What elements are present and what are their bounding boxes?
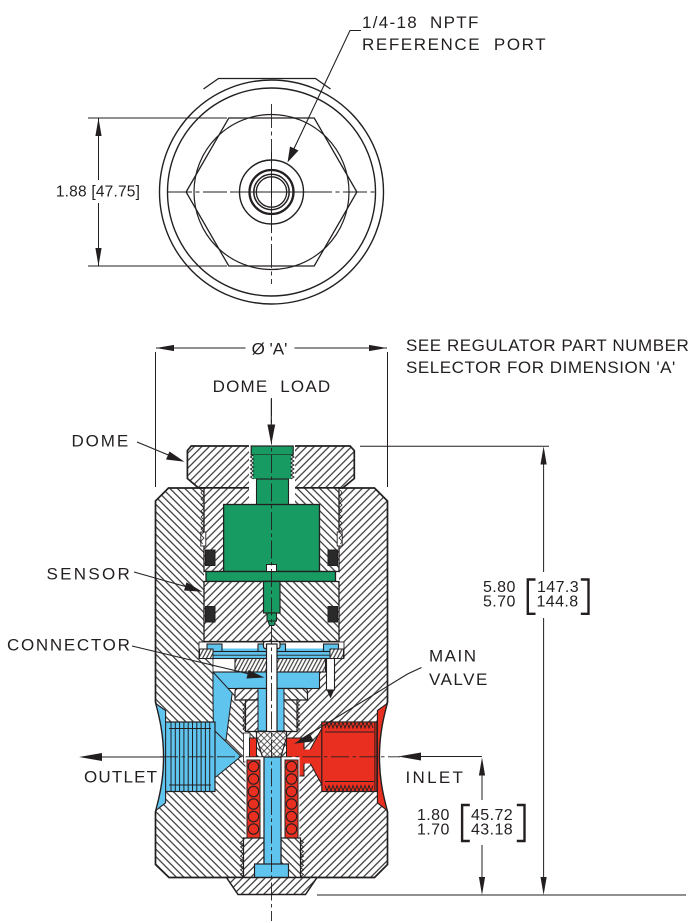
svg-text:Ø 'A': Ø 'A' <box>252 340 288 359</box>
svg-text:1.70: 1.70 <box>417 821 450 838</box>
svg-text:SELECTOR FOR DIMENSION 'A': SELECTOR FOR DIMENSION 'A' <box>406 358 676 377</box>
svg-text:1.88 [47.75]: 1.88 [47.75] <box>56 184 140 201</box>
svg-text:43.18: 43.18 <box>471 821 513 838</box>
svg-text:INLET: INLET <box>406 768 466 787</box>
svg-text:144.8: 144.8 <box>537 593 579 610</box>
svg-text:REFERENCE PORT: REFERENCE PORT <box>362 35 547 54</box>
svg-text:CONNECTOR: CONNECTOR <box>7 636 132 655</box>
svg-text:DOME LOAD: DOME LOAD <box>213 377 332 396</box>
svg-text:SENSOR: SENSOR <box>47 565 133 584</box>
svg-text:VALVE: VALVE <box>429 670 489 689</box>
svg-text:1/4-18 NPTF: 1/4-18 NPTF <box>362 13 480 32</box>
svg-text:MAIN: MAIN <box>429 647 478 666</box>
svg-text:OUTLET: OUTLET <box>84 768 158 787</box>
svg-text:5.70: 5.70 <box>483 593 516 610</box>
svg-text:SEE REGULATOR PART NUMBER: SEE REGULATOR PART NUMBER <box>406 336 689 355</box>
svg-text:DOME: DOME <box>72 432 131 451</box>
